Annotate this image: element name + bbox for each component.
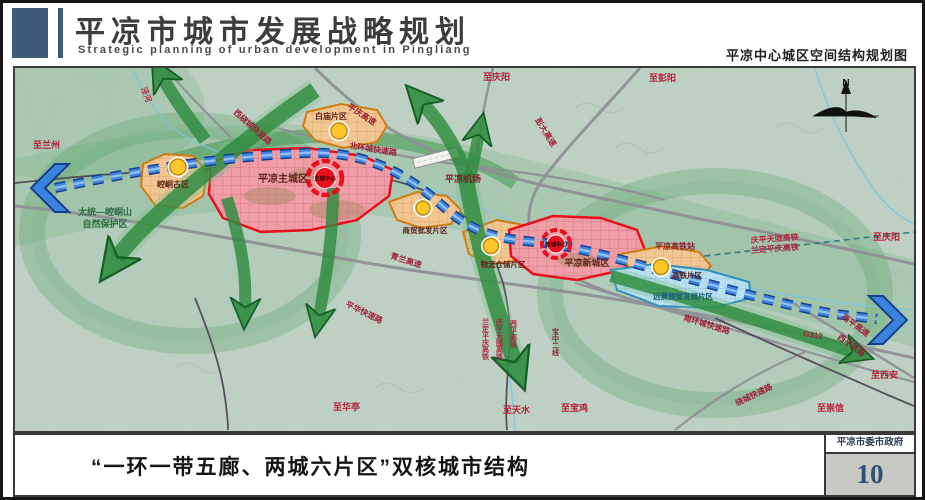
page-subtitle: Strategic planning of urban development … <box>78 44 472 56</box>
label-trade: 商贸批发片区 <box>403 225 448 235</box>
planning-map: 主城中心 新城中心 崆峒古区 平凉主城区 白庙片区 商贸批发片区 物流仓储片区 … <box>13 66 916 433</box>
label-baozhong2-vertical: 宝中二线 <box>552 327 560 357</box>
page: 平凉市城市发展战略规划 Strategic planning of urban … <box>0 0 925 500</box>
label-baimiao: 白庙片区 <box>315 111 347 121</box>
label-to-baoji: 至宝鸡 <box>561 402 588 413</box>
node-kongtong <box>170 159 186 175</box>
label-reserved-dev: 远景预留发展片区 <box>653 291 713 301</box>
node-trade <box>416 201 430 215</box>
label-to-tianshui: 至天水 <box>503 404 531 415</box>
label-to-qingyang-east: 至庆阳 <box>873 231 900 242</box>
node-baimiao <box>331 123 347 139</box>
label-airport: 平凉机场 <box>445 173 481 184</box>
stamp-organization: 平凉市委市政府 <box>826 435 914 454</box>
label-new-city: 平凉新城区 <box>564 257 609 268</box>
label-hsr-district: 高铁片区 <box>672 270 702 280</box>
label-to-lanzhou: 至兰州 <box>33 139 60 150</box>
logo-bar <box>58 8 63 58</box>
node-logistics <box>484 239 499 254</box>
page-number: 10 <box>826 454 914 495</box>
logo-square <box>12 8 48 58</box>
label-to-pengyang: 至彭阳 <box>649 72 676 83</box>
structure-caption: “一环一带五廊、两城六片区”双核城市结构 <box>91 451 530 481</box>
map-svg: 主城中心 新城中心 崆峒古区 平凉主城区 白庙片区 商贸批发片区 物流仓储片区 … <box>15 68 914 431</box>
label-to-chongxin: 至崇信 <box>817 402 844 413</box>
main-city-center-label: 主城中心 <box>314 175 337 183</box>
label-nature-reserve-1: 太统—崆峒山 <box>77 206 132 217</box>
label-hsr-station: 平凉高铁站 <box>655 241 695 251</box>
label-kongtong: 崆峒古区 <box>157 179 189 189</box>
label-main-city: 平凉主城区 <box>258 172 308 185</box>
node-hsr <box>654 260 669 275</box>
label-to-xian: 至西安 <box>871 369 898 380</box>
new-city-center-label: 新城中心 <box>545 241 568 249</box>
label-to-huating: 至华亭 <box>333 401 360 412</box>
label-to-qingyang-north: 至庆阳 <box>483 71 510 82</box>
label-nature-reserve-2: 自然保护区 <box>82 218 127 229</box>
label-xiping-hsr-vertical: 西平高铁 <box>510 320 518 349</box>
footer: “一环一带五廊、两城六片区”双核城市结构 平凉市委市政府 10 <box>13 433 916 497</box>
map-title-label: 平凉中心城区空间结构规划图 <box>726 45 908 64</box>
label-logistics: 物流仓储片区 <box>481 259 526 269</box>
page-stamp: 平凉市委市政府 10 <box>824 435 914 495</box>
